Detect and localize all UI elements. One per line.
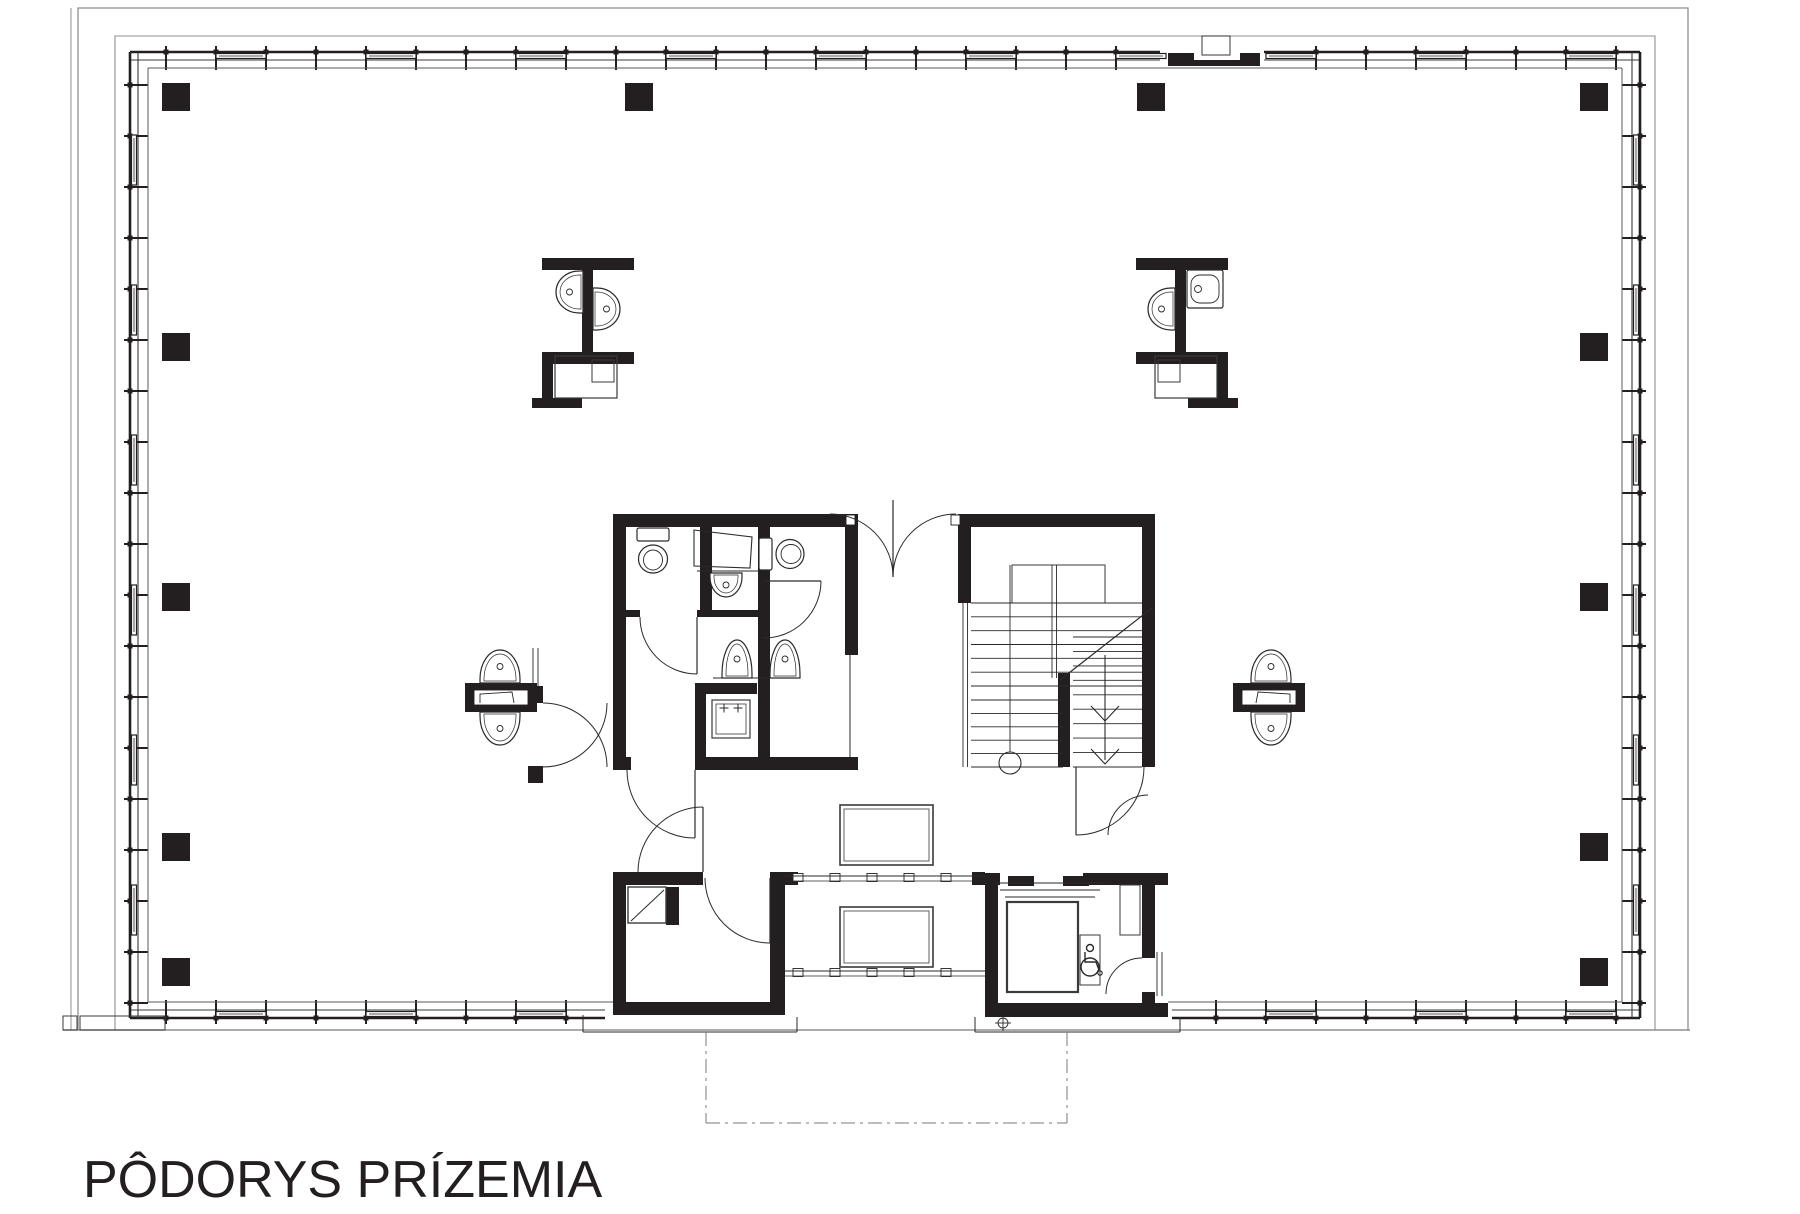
- toilet: [637, 528, 669, 573]
- mullion-tick-cap: [1514, 1016, 1519, 1021]
- sink-square: [1187, 270, 1223, 308]
- door-swing: [543, 703, 607, 767]
- mullion-tick-cap: [1064, 50, 1069, 55]
- mullion-tick-cap: [128, 389, 133, 394]
- wheelchair-icon: [1081, 945, 1102, 977]
- closet-door-line: [631, 890, 664, 921]
- mullion-tick-cap: [1638, 950, 1643, 955]
- sink: [710, 573, 742, 597]
- wc-east-wall: [845, 527, 858, 655]
- mullion-tick-cap: [128, 338, 133, 343]
- wc-block-west-wall: [613, 527, 626, 757]
- elevator-east-wall-b: [1142, 992, 1155, 1017]
- mullion-tick-cap: [1638, 389, 1643, 394]
- stair-flight-lower: [971, 700, 1063, 767]
- sink: [556, 271, 583, 313]
- sink: [1148, 288, 1175, 330]
- door-swing: [1106, 958, 1142, 994]
- door-jamb-mark: [951, 515, 960, 525]
- roof-duct: [1202, 36, 1230, 55]
- mullion-tick-cap: [1638, 1001, 1643, 1006]
- island-east-side: [1217, 364, 1228, 400]
- island-west-mid-bar: [542, 352, 634, 364]
- stair-north-wall: [958, 514, 1155, 527]
- island-east-stem: [1175, 270, 1186, 352]
- mullion-tick-cap: [128, 542, 133, 547]
- stair-flight-return: [1073, 637, 1142, 767]
- stair-west-wall: [958, 527, 971, 603]
- vestibule-post-east: [972, 872, 985, 885]
- glazing-block: [904, 969, 914, 977]
- mullion-tick-cap: [1638, 542, 1643, 547]
- north-shaft-wall-b: [1194, 60, 1240, 66]
- shower-tray: [712, 700, 750, 738]
- stair-east-wall: [1142, 527, 1155, 767]
- island-west-stem: [582, 270, 593, 352]
- elevator-door-block-b: [1063, 876, 1089, 886]
- site-outline-outer: [78, 8, 1688, 1030]
- column: [162, 833, 190, 861]
- closet-stub: [666, 887, 679, 925]
- mullion-tick-cap: [128, 848, 133, 853]
- shower-wall-west: [695, 683, 706, 757]
- door-swing: [893, 514, 956, 577]
- mullion-tick-cap: [1214, 1016, 1219, 1021]
- fountain-sink: [1251, 650, 1291, 683]
- column: [162, 333, 190, 361]
- mullion-tick-cap: [128, 1001, 133, 1006]
- door-swing: [638, 807, 703, 872]
- fountain-sink: [480, 650, 520, 683]
- toilet: [759, 538, 804, 570]
- elevator-car: [1007, 902, 1078, 992]
- plan-title: PÔDORYS PRÍZEMIA: [83, 1150, 602, 1210]
- mullion-tick-cap: [1514, 50, 1519, 55]
- mullion-tick-cap: [1638, 848, 1643, 853]
- floor-plan-canvas: [0, 0, 1800, 1214]
- wall-end-a: [63, 1016, 77, 1030]
- sink: [770, 640, 800, 678]
- column: [162, 583, 190, 611]
- glazing-block: [830, 874, 840, 882]
- column: [1580, 583, 1608, 611]
- entrance-mat-inner: [840, 805, 933, 865]
- glazing-block: [793, 969, 803, 977]
- wc-block-north-wall: [613, 514, 858, 527]
- door-swing: [764, 581, 821, 638]
- mullion-tick-cap: [1638, 491, 1643, 496]
- mullion-tick-cap: [128, 236, 133, 241]
- island-west-south-bar: [532, 398, 582, 408]
- mullion-tick-cap: [1638, 797, 1643, 802]
- door-swing: [705, 878, 770, 943]
- storage-north-wall: [613, 872, 703, 885]
- island-west-north-bar: [542, 258, 634, 270]
- north-shaft-wall-c: [1240, 53, 1260, 66]
- mullion-tick-cap: [1638, 83, 1643, 88]
- storage-west-wall: [613, 872, 626, 1015]
- island-east-mid-bar: [1136, 352, 1228, 364]
- island-east-north-bar: [1136, 258, 1228, 270]
- storage-south-wall: [613, 1002, 785, 1015]
- elevator-south-wall: [985, 1003, 1168, 1017]
- entrance-mat-inner-line: [844, 809, 929, 861]
- entrance-mat-outer-line: [844, 911, 929, 963]
- door-swing: [1076, 767, 1144, 835]
- glazing-block: [867, 874, 877, 882]
- mullion-tick-cap: [464, 50, 469, 55]
- door-swing: [627, 770, 695, 838]
- door-swing: [1108, 795, 1148, 835]
- island-west-side: [542, 364, 553, 400]
- glazing-block: [941, 969, 951, 977]
- column: [162, 958, 190, 986]
- column: [162, 83, 190, 111]
- mullion-tick-cap: [314, 50, 319, 55]
- mullion-tick-cap: [914, 50, 919, 55]
- entrance-mat-outer: [840, 907, 933, 967]
- glazing-block: [830, 969, 840, 977]
- stair-divider-wall: [1058, 673, 1070, 767]
- mullion-tick-cap: [314, 1016, 319, 1021]
- stair-break-line: [1060, 608, 1152, 680]
- mullion-tick-cap: [1638, 338, 1643, 343]
- mullion-tick-cap: [764, 50, 769, 55]
- wc-mid-wall: [697, 610, 758, 617]
- glazing-block: [941, 874, 951, 882]
- wc-mid-wall-stub: [626, 610, 640, 617]
- column: [1580, 333, 1608, 361]
- mullion-tick-cap: [614, 50, 619, 55]
- wc-south-wall-a: [613, 757, 631, 770]
- stair-start-circle: [999, 752, 1021, 774]
- glazing-block: [904, 874, 914, 882]
- mullion-tick-cap: [128, 950, 133, 955]
- island-east-south-bar: [1188, 398, 1238, 408]
- shower-wall-north: [695, 683, 757, 694]
- mullion-tick-cap: [164, 50, 169, 55]
- mullion-tick-cap: [1638, 236, 1643, 241]
- mullion-tick-cap: [1364, 1016, 1369, 1021]
- floor-plan: PÔDORYS PRÍZEMIA: [0, 0, 1800, 1214]
- door-swing: [543, 703, 607, 767]
- door-swing: [640, 617, 697, 674]
- north-shaft-wall-a: [1168, 53, 1194, 66]
- elevator-fold-seat: [1080, 935, 1100, 985]
- glazing-block: [793, 874, 803, 882]
- elevator-cabinet: [1120, 885, 1140, 935]
- mullion-tick-cap: [1364, 50, 1369, 55]
- mullion-tick-cap: [464, 1016, 469, 1021]
- fountain-sink: [1251, 712, 1291, 745]
- closet: [628, 887, 666, 923]
- sink: [593, 288, 620, 330]
- elevator-east-wall-a: [1142, 885, 1155, 958]
- column: [1580, 833, 1608, 861]
- elevator-door-block-a: [1008, 876, 1034, 886]
- mullion-tick-cap: [128, 644, 133, 649]
- wc-partition-a: [700, 527, 712, 610]
- mullion-tick-cap: [128, 797, 133, 802]
- wc-south-wall-b: [695, 757, 858, 770]
- storage-east-wall: [770, 872, 785, 1015]
- fountain-sink: [480, 712, 520, 745]
- mullion-tick-cap: [128, 491, 133, 496]
- elevator-west-wall: [985, 885, 998, 1017]
- column: [1137, 83, 1165, 111]
- column: [1580, 958, 1608, 986]
- column: [1580, 83, 1608, 111]
- mullion-tick-cap: [128, 695, 133, 700]
- mullion-tick-cap: [1638, 695, 1643, 700]
- mullion-tick-cap: [1638, 644, 1643, 649]
- stair-landing: [1012, 565, 1105, 603]
- sink: [722, 640, 752, 678]
- mullion-tick-cap: [128, 83, 133, 88]
- column: [625, 83, 653, 111]
- glazing-block: [867, 969, 877, 977]
- west-partition-stub-b: [528, 766, 543, 783]
